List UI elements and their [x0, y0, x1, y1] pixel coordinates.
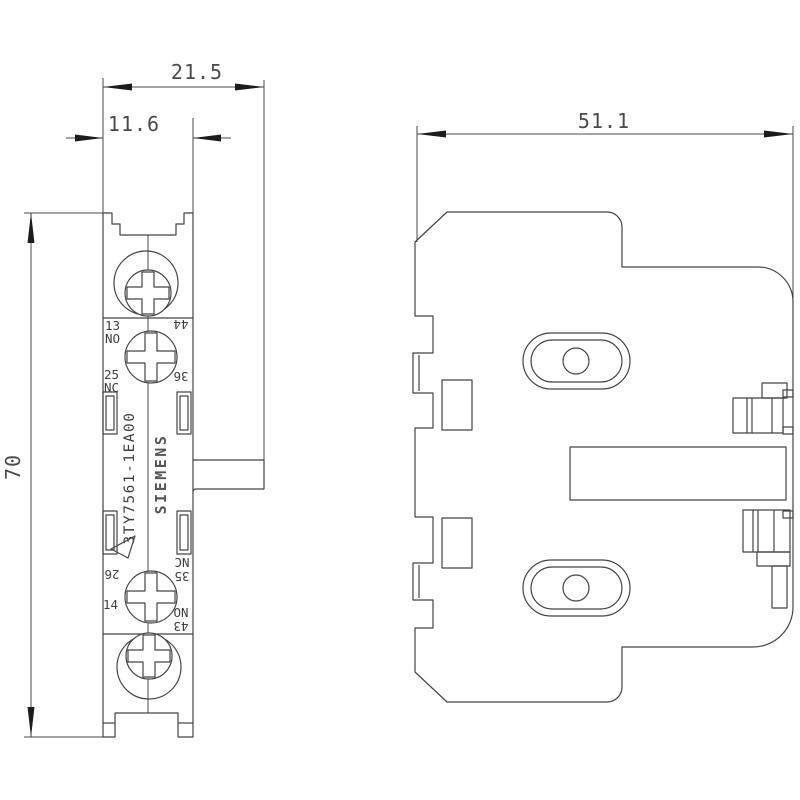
terminal-label-43: 43: [173, 619, 188, 634]
oval-boss-top: [523, 333, 630, 389]
front-view-outline: [413, 212, 793, 702]
arrowhead: [28, 707, 35, 737]
center-slot: [570, 447, 786, 500]
screw-upper: [125, 331, 177, 383]
arrowhead: [103, 84, 132, 91]
side-view: 3TY7561-1EA00 SIEMENS 13 NO 44 25 NC 36 …: [103, 213, 264, 737]
terminal-clip-upper-right: [733, 383, 793, 434]
terminal-label-nc-bottom: NC: [174, 555, 189, 570]
left-inner-slot-lower: [442, 518, 472, 568]
side-clip-upper-left: [103, 392, 117, 434]
dimension-depth: 51.1: [417, 109, 793, 302]
arrowhead: [28, 213, 35, 243]
terminal-label-44: 44: [173, 317, 188, 332]
terminal-label-36: 36: [173, 369, 188, 384]
dimension-height: 70: [1, 213, 103, 737]
screw-bottom: [117, 633, 181, 699]
oval-boss-bottom: [523, 560, 630, 616]
dim-depth-label: 51.1: [578, 109, 630, 133]
arrowhead: [75, 135, 103, 142]
dim-height-label: 70: [1, 454, 25, 480]
part-number: 3TY7561-1EA00: [122, 412, 138, 545]
front-view: [413, 212, 793, 702]
side-clip-upper-right: [177, 392, 191, 434]
dim-body-width-label: 11.6: [108, 112, 160, 136]
side-clip-lower-right: [177, 511, 191, 554]
arrowhead: [417, 131, 446, 138]
terminal-label-14: 14: [103, 597, 118, 612]
dimension-body-width: 11.6: [66, 112, 231, 213]
screw-top: [114, 251, 178, 316]
brand-logo: SIEMENS: [152, 434, 170, 515]
arrowhead: [193, 135, 221, 142]
terminal-label-no-top: NO: [105, 331, 120, 346]
screw-lower: [125, 571, 177, 623]
technical-drawing-page: 21.5 11.6 51.1 70: [0, 0, 800, 800]
terminal-label-nc-top: NC: [104, 380, 119, 395]
terminal-label-35: 35: [174, 569, 189, 584]
mounting-tab: [193, 460, 264, 492]
terminal-label-no-bottom: NO: [173, 605, 188, 620]
technical-drawing: 21.5 11.6 51.1 70: [0, 0, 800, 800]
terminal-clip-lower-right: [743, 510, 793, 608]
arrowhead: [235, 84, 264, 91]
terminal-label-26: 26: [104, 567, 119, 582]
dim-overall-width-label: 21.5: [171, 60, 223, 84]
left-inner-slot-upper: [442, 380, 472, 430]
arrowhead: [764, 131, 793, 138]
